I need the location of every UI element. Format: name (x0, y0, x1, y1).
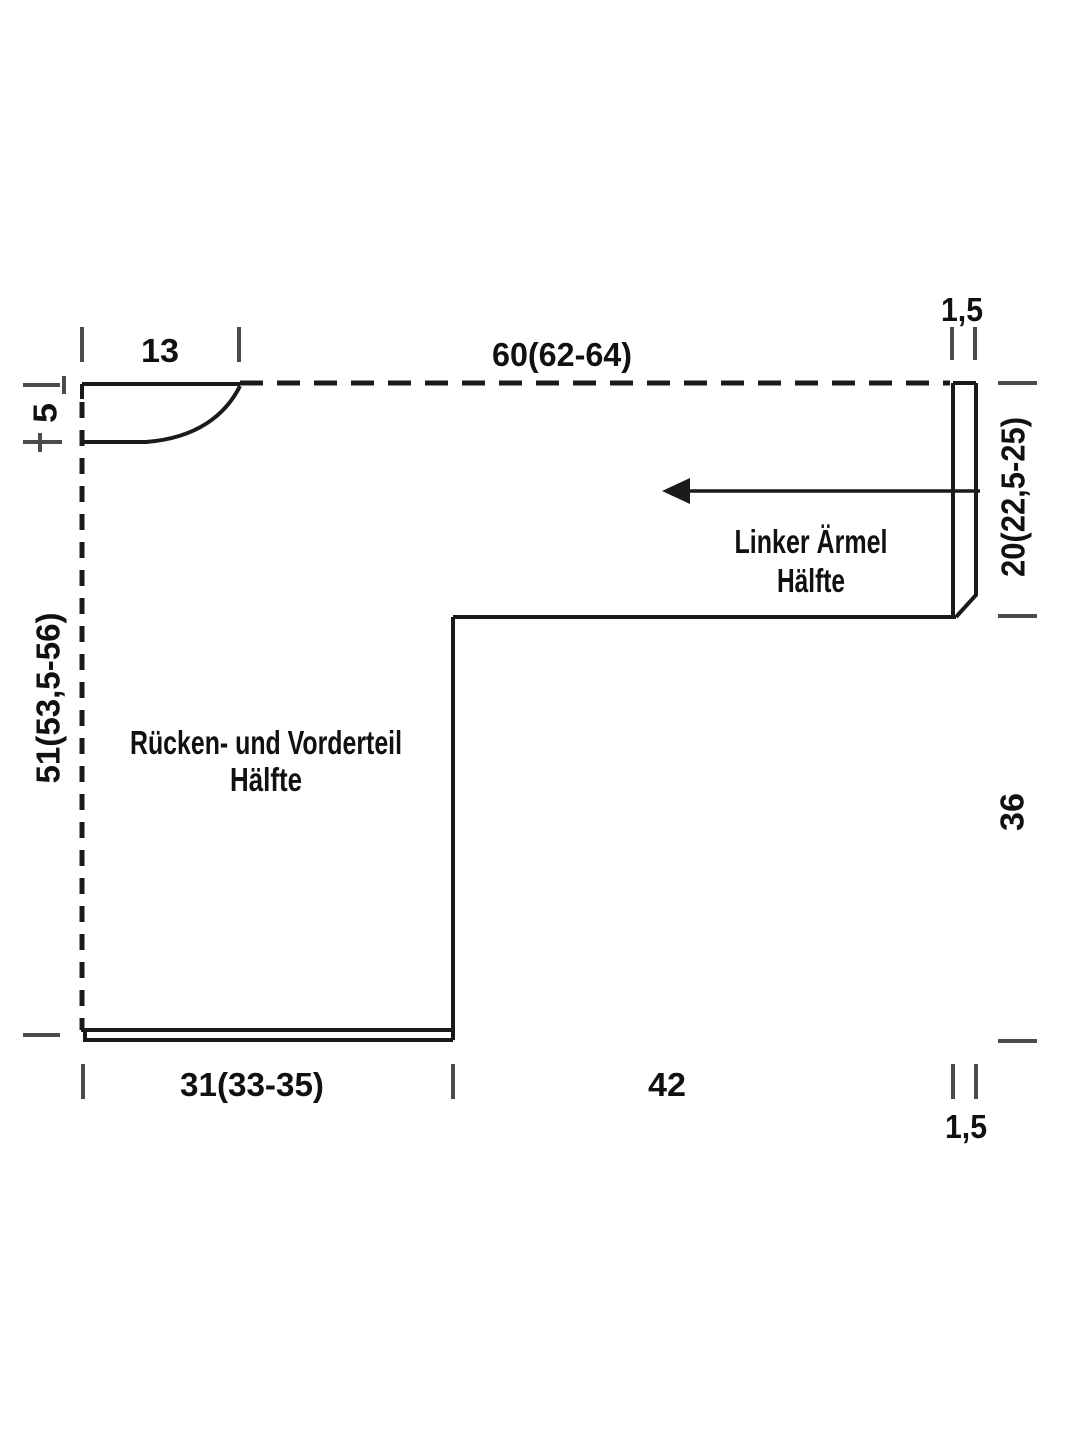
sleeve-length-label: 42 (648, 1066, 686, 1103)
schematic-diagram: 13 60(62-64) 1,5 5 51(53,5-56) 20(22,5-2… (0, 0, 1080, 1440)
sleeve-width-label: 20(22,5-25) (995, 417, 1032, 577)
dimension-labels: 13 60(62-64) 1,5 5 51(53,5-56) 20(22,5-2… (27, 291, 1032, 1145)
piece-outlines (81, 383, 976, 1040)
neckline-curve (82, 386, 240, 442)
fold-lines (82, 383, 950, 1030)
sleeve-direction-arrow-head (662, 478, 690, 504)
body-piece-label-line2: Hälfte (230, 761, 302, 798)
cuff-bottom-label: 1,5 (945, 1108, 987, 1145)
side-seam-label: 36 (994, 793, 1031, 831)
back-length-label: 51(53,5-56) (30, 613, 67, 784)
dimension-ticks (23, 327, 1037, 1099)
hem-bottom-line (85, 1031, 453, 1040)
sleeve-piece-label-line2: Hälfte (777, 562, 845, 599)
hem-width-label: 31(33-35) (180, 1066, 324, 1103)
cuff-top-label: 1,5 (941, 291, 983, 328)
sleeve-direction-arrow (662, 478, 980, 504)
pattern-schematic-page: 13 60(62-64) 1,5 5 51(53,5-56) 20(22,5-2… (0, 0, 1080, 1440)
piece-labels: Rücken- und Vorderteil Hälfte Linker Ärm… (130, 523, 888, 798)
top-width-label: 60(62-64) (492, 336, 632, 373)
neck-depth-label: 5 (27, 403, 64, 423)
cuff-outer-line (956, 383, 976, 617)
sleeve-piece-label-line1: Linker Ärmel (735, 523, 888, 560)
body-piece-label-line1: Rücken- und Vorderteil (130, 724, 402, 761)
neck-width-label: 13 (141, 332, 179, 369)
